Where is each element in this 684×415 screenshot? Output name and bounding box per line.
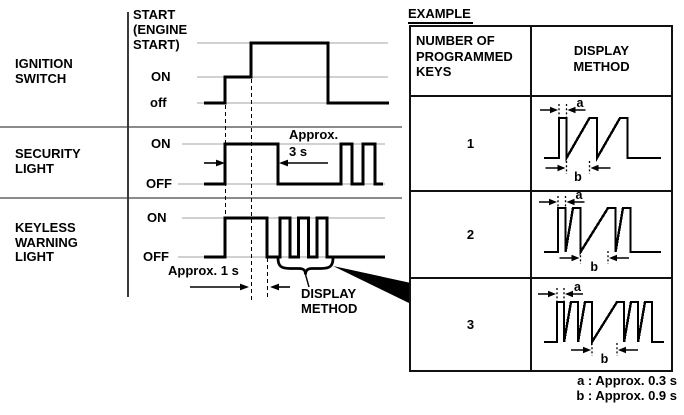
ignition-waveform [204,43,389,103]
service-manual-diagram: IGNITION SWITCH SECURITY LIGHT KEYLESS W… [0,0,684,415]
display-method-waveform-1: ab [532,97,671,190]
footnote-a: a : Approx. 0.3 s [430,374,677,389]
level-label-ignition-on: ON [151,70,171,85]
measure-arrowhead [548,291,556,297]
measure-label-a: a [574,280,582,294]
blink-pattern-path [544,302,664,342]
measure-3s-arrows [204,160,328,167]
measure-label-a: a [576,192,584,202]
level-label-keyless-on: ON [147,211,167,226]
example-table: NUMBER OF PROGRAMMED KEYS DISPLAY METHOD… [409,25,673,372]
blink-pattern-path [544,118,661,158]
col-header-number-of-keys: NUMBER OF PROGRAMMED KEYS [416,33,513,80]
footnote-b: b : Approx. 0.9 s [430,389,677,404]
level-gridlines [178,43,389,257]
annotation-approx-3s: Approx. 3 s [289,127,338,160]
measure-label-b: b [574,170,582,184]
display-method-waveform-3: ab [532,279,671,370]
measure-1s-arrows [190,284,290,291]
measure-label-b: b [590,260,598,274]
signal-label-keyless-warning-light: KEYLESS WARNING LIGHT [15,221,78,265]
measure-arrowhead [558,165,566,171]
level-label-security-off: OFF [146,177,172,192]
measure-arrowhead [565,291,573,297]
level-label-keyless-off: OFF [143,250,169,265]
example-title: EXAMPLE [408,6,473,24]
measure-label-a: a [577,97,585,110]
key-count-cell-3: 3 [411,279,530,370]
level-label-start: START (ENGINE START) [133,7,187,52]
measure-arrowhead [567,199,575,205]
measure-arrowhead [568,107,576,113]
blink-pattern-path [544,208,661,252]
measure-arrowhead [550,107,558,113]
annotation-approx-1s: Approx. 1 s [168,264,239,279]
signal-label-ignition-switch: IGNITION SWITCH [15,57,73,86]
display-method-brace [278,258,333,275]
level-label-ignition-off: off [150,96,167,111]
display-method-waveform-2: ab [532,192,671,277]
key-count-cell-1: 1 [411,97,530,190]
measure-arrowhead [618,347,626,353]
display-method-callout-label: DISPLAY METHOD [301,286,357,316]
measure-arrowhead [572,255,580,261]
measure-label-b: b [601,352,609,366]
measure-arrowhead [549,199,557,205]
measure-footnotes: a : Approx. 0.3 s b : Approx. 0.9 s [430,374,677,403]
measure-arrowhead [609,255,617,261]
measure-arrowhead [591,165,599,171]
keyless-warning-waveform [204,218,385,257]
key-count-cell-2: 2 [411,192,530,277]
signal-label-security-light: SECURITY LIGHT [15,147,81,176]
level-label-security-on: ON [151,137,171,152]
measure-arrowhead [583,347,591,353]
col-header-display-method: DISPLAY METHOD [532,43,671,74]
